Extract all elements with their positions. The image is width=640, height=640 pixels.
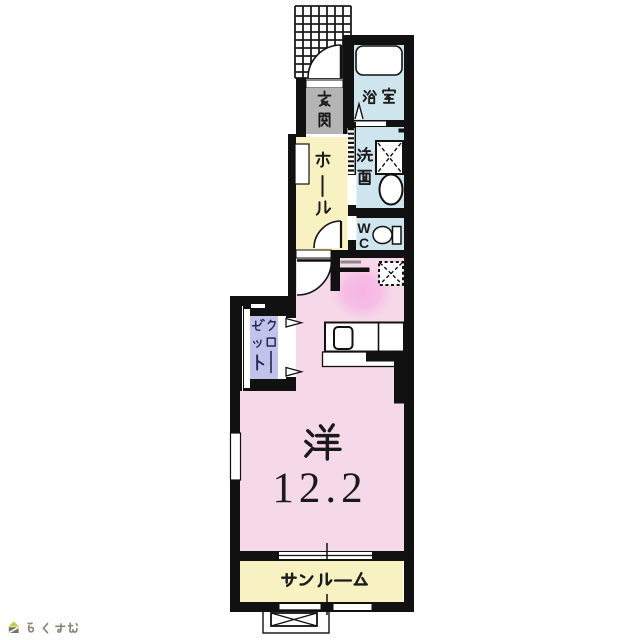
svg-text:W: W (357, 220, 371, 236)
svg-text:12.2: 12.2 (272, 465, 367, 512)
svg-text:C: C (359, 235, 369, 251)
